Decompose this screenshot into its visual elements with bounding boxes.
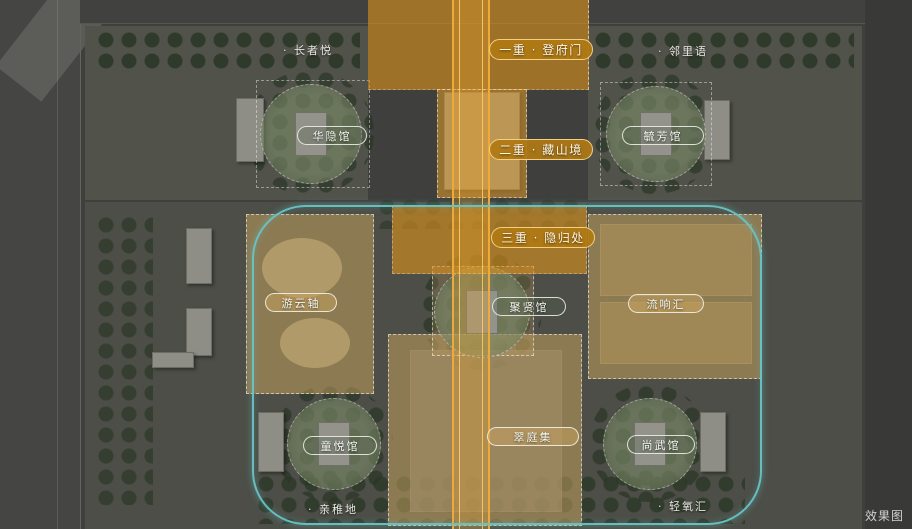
poi-label-linliyu: · 邻里语 (658, 43, 708, 59)
venue-label-yufangguan: 毓芳馆 (622, 126, 704, 145)
building-footprint (152, 352, 194, 368)
teal-boundary-outline (252, 205, 762, 525)
venue-label-liuxianghui: 流响汇 (628, 294, 704, 313)
venue-label-tongyueguan: 童悦馆 (303, 436, 377, 455)
tree-texture (592, 30, 854, 72)
poi-label-qingyanghui: · 轻氧汇 (658, 498, 708, 514)
poi-label-qinzhidi: · 亲稚地 (308, 501, 358, 517)
venue-label-cuitingji: 翠庭集 (487, 427, 579, 446)
watermark-label: 效果图 (865, 507, 904, 524)
building-footprint (186, 228, 212, 284)
venue-label-youyunzhou: 游云轴 (265, 293, 337, 312)
road-right (865, 0, 912, 529)
sidewalk-line (57, 0, 58, 529)
zone-label-2: 二重 · 藏山境 (489, 139, 593, 160)
tree-texture (95, 215, 153, 505)
venue-label-shangwuguan: 尚武馆 (627, 435, 695, 454)
site-plan-rendering: 一重 · 登府门 二重 · 藏山境 三重 · 隐归处 华隐馆 毓芳馆 游云轴 聚… (0, 0, 912, 529)
zone-label-1: 一重 · 登府门 (489, 39, 593, 60)
venue-label-huayinguan: 华隐馆 (297, 126, 367, 145)
venue-label-juxianguan: 聚贤馆 (492, 297, 566, 316)
zone-label-3: 三重 · 隐归处 (491, 227, 595, 248)
building-footprint (186, 308, 212, 356)
poi-label-changzheyue: · 长者悦 (283, 42, 333, 58)
